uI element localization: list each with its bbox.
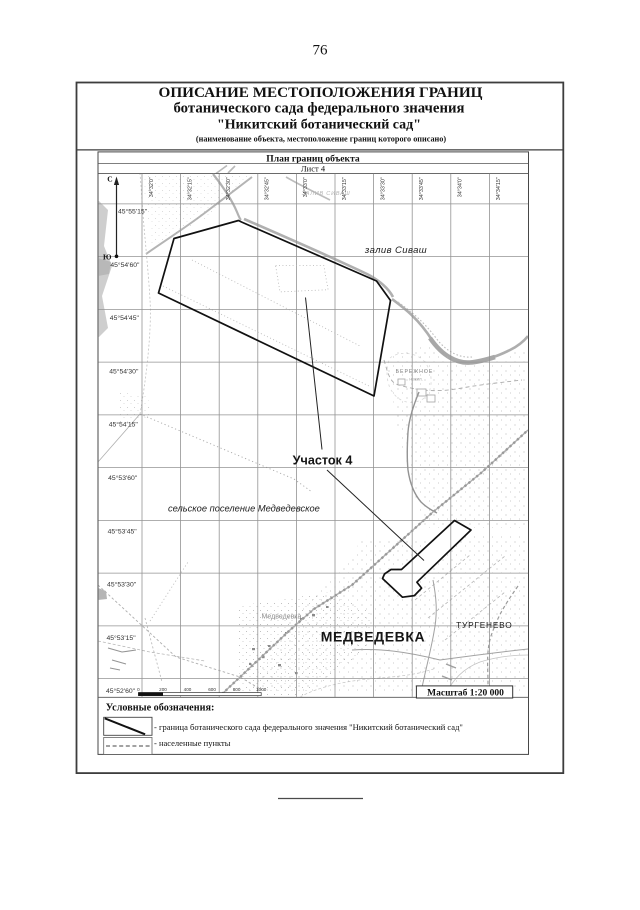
svg-text:34°34'0": 34°34'0" <box>458 177 464 197</box>
svg-text:800: 800 <box>233 687 241 692</box>
svg-text:Лист 4: Лист 4 <box>301 163 326 173</box>
svg-text:Ю: Ю <box>103 252 112 261</box>
svg-text:С: С <box>107 175 112 184</box>
svg-text:400: 400 <box>184 687 192 692</box>
svg-text:сельское поселение Медведевско: сельское поселение Медведевское <box>168 504 320 514</box>
svg-text:ТУРГЕНЕВО: ТУРГЕНЕВО <box>456 620 512 630</box>
svg-text:34°33'30": 34°33'30" <box>380 177 386 200</box>
svg-text:МЕДВЕДЕВКА: МЕДВЕДЕВКА <box>321 628 426 644</box>
svg-text:- населенные пункты: - населенные пункты <box>154 738 231 748</box>
svg-text:34°34'15": 34°34'15" <box>496 177 502 200</box>
svg-text:0: 0 <box>137 687 140 692</box>
svg-text:Медведевка: Медведевка <box>262 614 302 621</box>
svg-text:нежил.: нежил. <box>409 377 422 382</box>
svg-text:БЕРЕЖНОЕ: БЕРЕЖНОЕ <box>396 369 434 375</box>
svg-text:Масштаб 1:20 000: Масштаб 1:20 000 <box>427 687 504 698</box>
svg-text:34°32'30": 34°32'30" <box>226 177 232 200</box>
svg-text:200: 200 <box>159 687 167 692</box>
svg-text:45°53'60": 45°53'60" <box>108 474 138 482</box>
svg-text:ОПИСАНИЕ МЕСТОПОЛОЖЕНИЯ ГРАНИЦ: ОПИСАНИЕ МЕСТОПОЛОЖЕНИЯ ГРАНИЦ <box>159 84 483 101</box>
svg-text:45°54'30": 45°54'30" <box>109 367 139 375</box>
svg-text:45°55'15": 45°55'15" <box>118 208 148 216</box>
svg-text:Условные обозначения:: Условные обозначения: <box>106 703 215 714</box>
svg-text:34°32'45": 34°32'45" <box>265 177 271 200</box>
svg-text:600: 600 <box>208 687 216 692</box>
svg-text:1000: 1000 <box>256 687 267 692</box>
svg-text:ботанического сада федеральног: ботанического сада федерального значения <box>173 101 464 117</box>
svg-text:45°52'60": 45°52'60" <box>106 687 136 695</box>
svg-text:45°53'30": 45°53'30" <box>107 581 137 589</box>
svg-text:76: 76 <box>313 43 329 59</box>
svg-text:залив Сиваш: залив Сиваш <box>364 245 427 256</box>
svg-text:34°32'15": 34°32'15" <box>187 177 193 200</box>
svg-text:"Никитский ботанический сад": "Никитский ботанический сад" <box>217 118 421 133</box>
svg-text:- граница ботанического сада ф: - граница ботанического сада федеральног… <box>154 722 463 732</box>
svg-text:(наименование объекта, местопо: (наименование объекта, местоположение гр… <box>196 135 446 144</box>
svg-text:45°53'45": 45°53'45" <box>108 527 138 535</box>
svg-text:Участок 4: Участок 4 <box>293 454 353 468</box>
svg-text:34°32'0": 34°32'0" <box>149 177 155 197</box>
svg-text:34°33'15": 34°33'15" <box>342 177 348 200</box>
svg-text:34°33'45": 34°33'45" <box>419 177 425 200</box>
svg-text:45°54'15": 45°54'15" <box>109 421 139 429</box>
svg-text:45°53'15": 45°53'15" <box>107 634 137 642</box>
svg-text:34°33'0": 34°33'0" <box>303 177 309 197</box>
svg-text:45°54'60": 45°54'60" <box>110 261 140 269</box>
svg-text:45°54'45": 45°54'45" <box>110 314 140 322</box>
